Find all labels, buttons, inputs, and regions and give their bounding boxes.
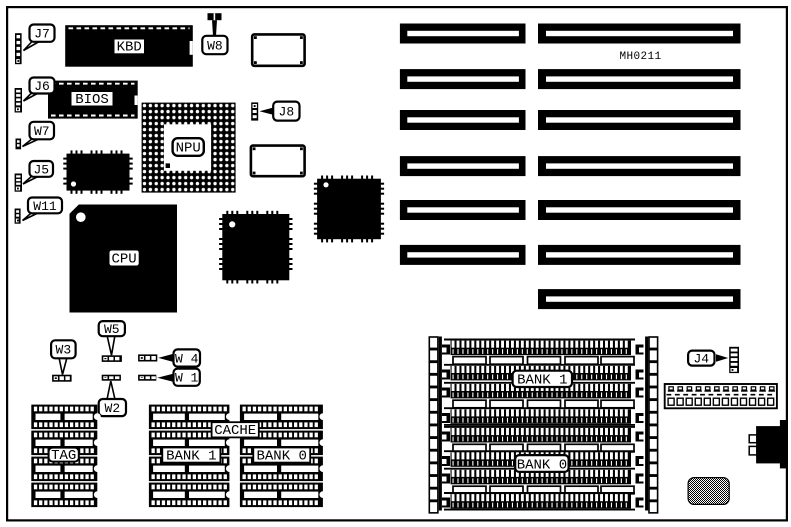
- svg-text:KBD: KBD: [117, 40, 142, 56]
- svg-text:BIOS: BIOS: [75, 92, 109, 108]
- svg-text:BANK 0: BANK 0: [256, 448, 306, 464]
- svg-text:J5: J5: [33, 162, 49, 177]
- svg-text:J7: J7: [34, 27, 50, 42]
- svg-text:W11: W11: [33, 199, 57, 214]
- svg-text:W7: W7: [34, 124, 50, 139]
- svg-text:CACHE: CACHE: [214, 423, 256, 439]
- svg-text:W 4: W 4: [175, 351, 199, 366]
- svg-text:BANK 1: BANK 1: [517, 373, 567, 389]
- svg-text:NPU: NPU: [176, 141, 201, 157]
- svg-text:TAG: TAG: [51, 448, 76, 464]
- svg-text:J4: J4: [693, 352, 709, 367]
- svg-text:BANK 0: BANK 0: [517, 457, 567, 473]
- svg-text:W2: W2: [105, 401, 121, 416]
- svg-text:CPU: CPU: [111, 251, 136, 267]
- svg-text:MH0211: MH0211: [619, 51, 661, 63]
- svg-text:J6: J6: [34, 79, 50, 94]
- svg-text:BANK 1: BANK 1: [166, 448, 216, 464]
- svg-text:W5: W5: [104, 322, 120, 337]
- svg-text:W3: W3: [56, 343, 72, 358]
- svg-text:W8: W8: [207, 38, 223, 53]
- svg-text:J8: J8: [279, 105, 295, 120]
- svg-text:W 1: W 1: [175, 371, 199, 386]
